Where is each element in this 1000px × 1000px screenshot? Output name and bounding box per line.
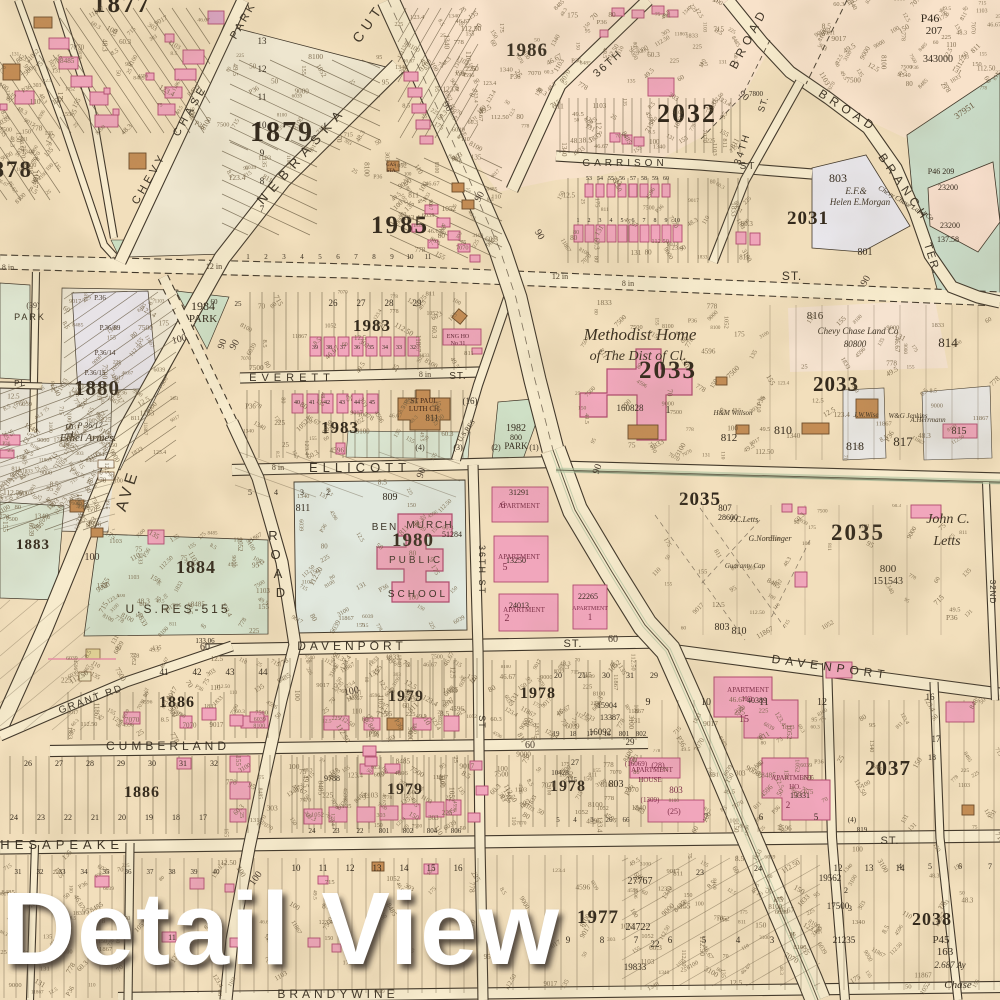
svg-text:Detail View: Detail View <box>1 871 561 986</box>
